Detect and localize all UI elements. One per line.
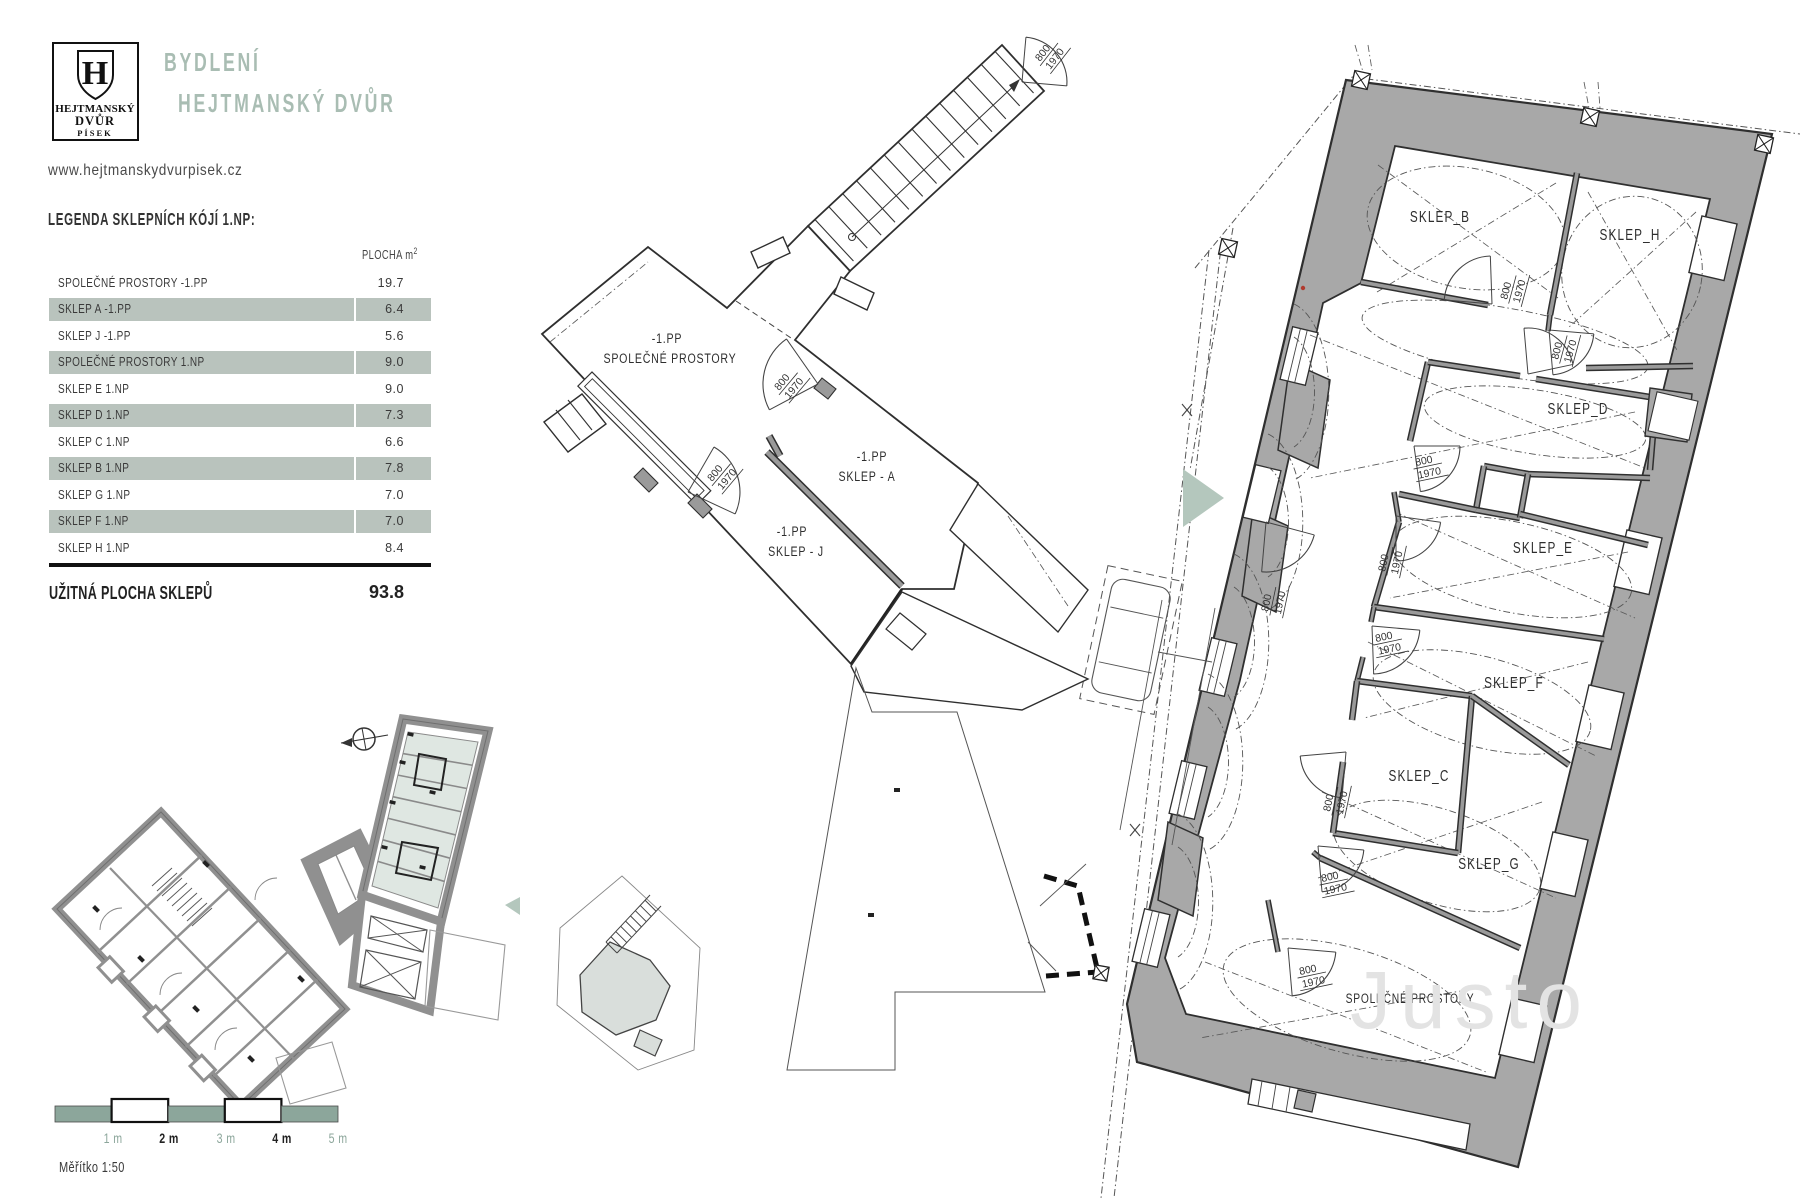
svg-text:3 m: 3 m: [217, 1131, 236, 1147]
svg-text:SKLEP - A: SKLEP - A: [839, 469, 896, 485]
svg-text:5 m: 5 m: [329, 1131, 348, 1147]
svg-text:SKLEP_G: SKLEP_G: [1458, 855, 1520, 872]
svg-text:-1.PP: -1.PP: [652, 331, 682, 347]
svg-text:SKLEP_C: SKLEP_C: [1389, 767, 1450, 784]
svg-text:SKLEP_B: SKLEP_B: [1410, 208, 1470, 225]
svg-text:Justo: Justo: [1350, 955, 1591, 1046]
svg-text:SPOLEČNÉ PROSTORY: SPOLEČNÉ PROSTORY: [603, 349, 736, 366]
svg-text:SKLEP_E: SKLEP_E: [1513, 539, 1573, 556]
svg-text:4 m: 4 m: [272, 1131, 291, 1147]
svg-text:-1.PP: -1.PP: [857, 449, 887, 465]
svg-text:SKLEP_D: SKLEP_D: [1548, 400, 1609, 417]
svg-text:1 m: 1 m: [104, 1131, 123, 1147]
svg-text:2 m: 2 m: [159, 1131, 178, 1147]
svg-text:-1.PP: -1.PP: [777, 524, 807, 540]
svg-text:SKLEP_H: SKLEP_H: [1600, 226, 1661, 243]
svg-text:Měřítko 1:50: Měřítko 1:50: [59, 1158, 125, 1175]
svg-text:SKLEP - J: SKLEP - J: [768, 544, 824, 560]
svg-text:SKLEP_F: SKLEP_F: [1484, 674, 1544, 691]
